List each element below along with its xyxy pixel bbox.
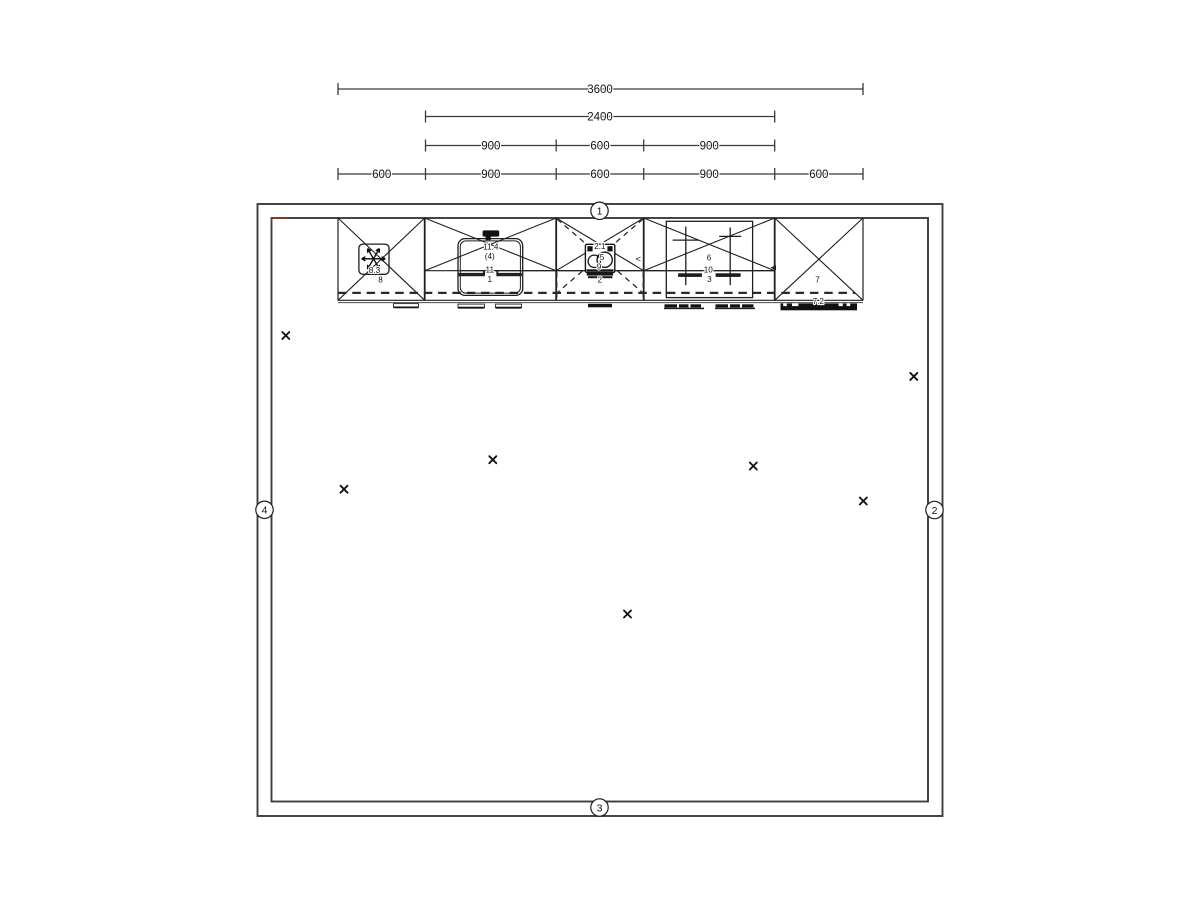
svg-text:9: 9 xyxy=(597,263,602,272)
svg-text:3600: 3600 xyxy=(587,84,613,96)
svg-text:7: 7 xyxy=(815,275,820,284)
svg-text:600: 600 xyxy=(372,169,391,181)
svg-text:<: < xyxy=(636,254,642,265)
svg-text:1: 1 xyxy=(488,275,493,284)
svg-text:900: 900 xyxy=(481,169,500,181)
svg-text:900: 900 xyxy=(700,169,719,181)
svg-text:2: 2 xyxy=(932,505,938,517)
svg-text:6: 6 xyxy=(707,253,712,262)
svg-text:2400: 2400 xyxy=(587,112,613,124)
svg-text:600: 600 xyxy=(590,169,609,181)
svg-text:2.1: 2.1 xyxy=(594,242,606,251)
svg-text:600: 600 xyxy=(809,169,828,181)
svg-text:10: 10 xyxy=(704,266,714,275)
svg-text:11.4: 11.4 xyxy=(483,242,499,251)
svg-text:1: 1 xyxy=(597,206,603,218)
svg-text:(4): (4) xyxy=(485,252,495,261)
svg-text:4: 4 xyxy=(262,505,268,517)
svg-text:2: 2 xyxy=(598,276,603,285)
svg-text:900: 900 xyxy=(481,141,500,153)
svg-text:8: 8 xyxy=(378,276,383,285)
svg-text:5: 5 xyxy=(600,253,605,262)
svg-text:11: 11 xyxy=(486,265,495,274)
svg-text:7.2: 7.2 xyxy=(813,297,825,306)
svg-text:8.3: 8.3 xyxy=(369,266,381,275)
svg-text:3: 3 xyxy=(707,275,712,284)
svg-text:900: 900 xyxy=(700,141,719,153)
svg-text:600: 600 xyxy=(590,141,609,153)
svg-text:3: 3 xyxy=(597,802,603,814)
